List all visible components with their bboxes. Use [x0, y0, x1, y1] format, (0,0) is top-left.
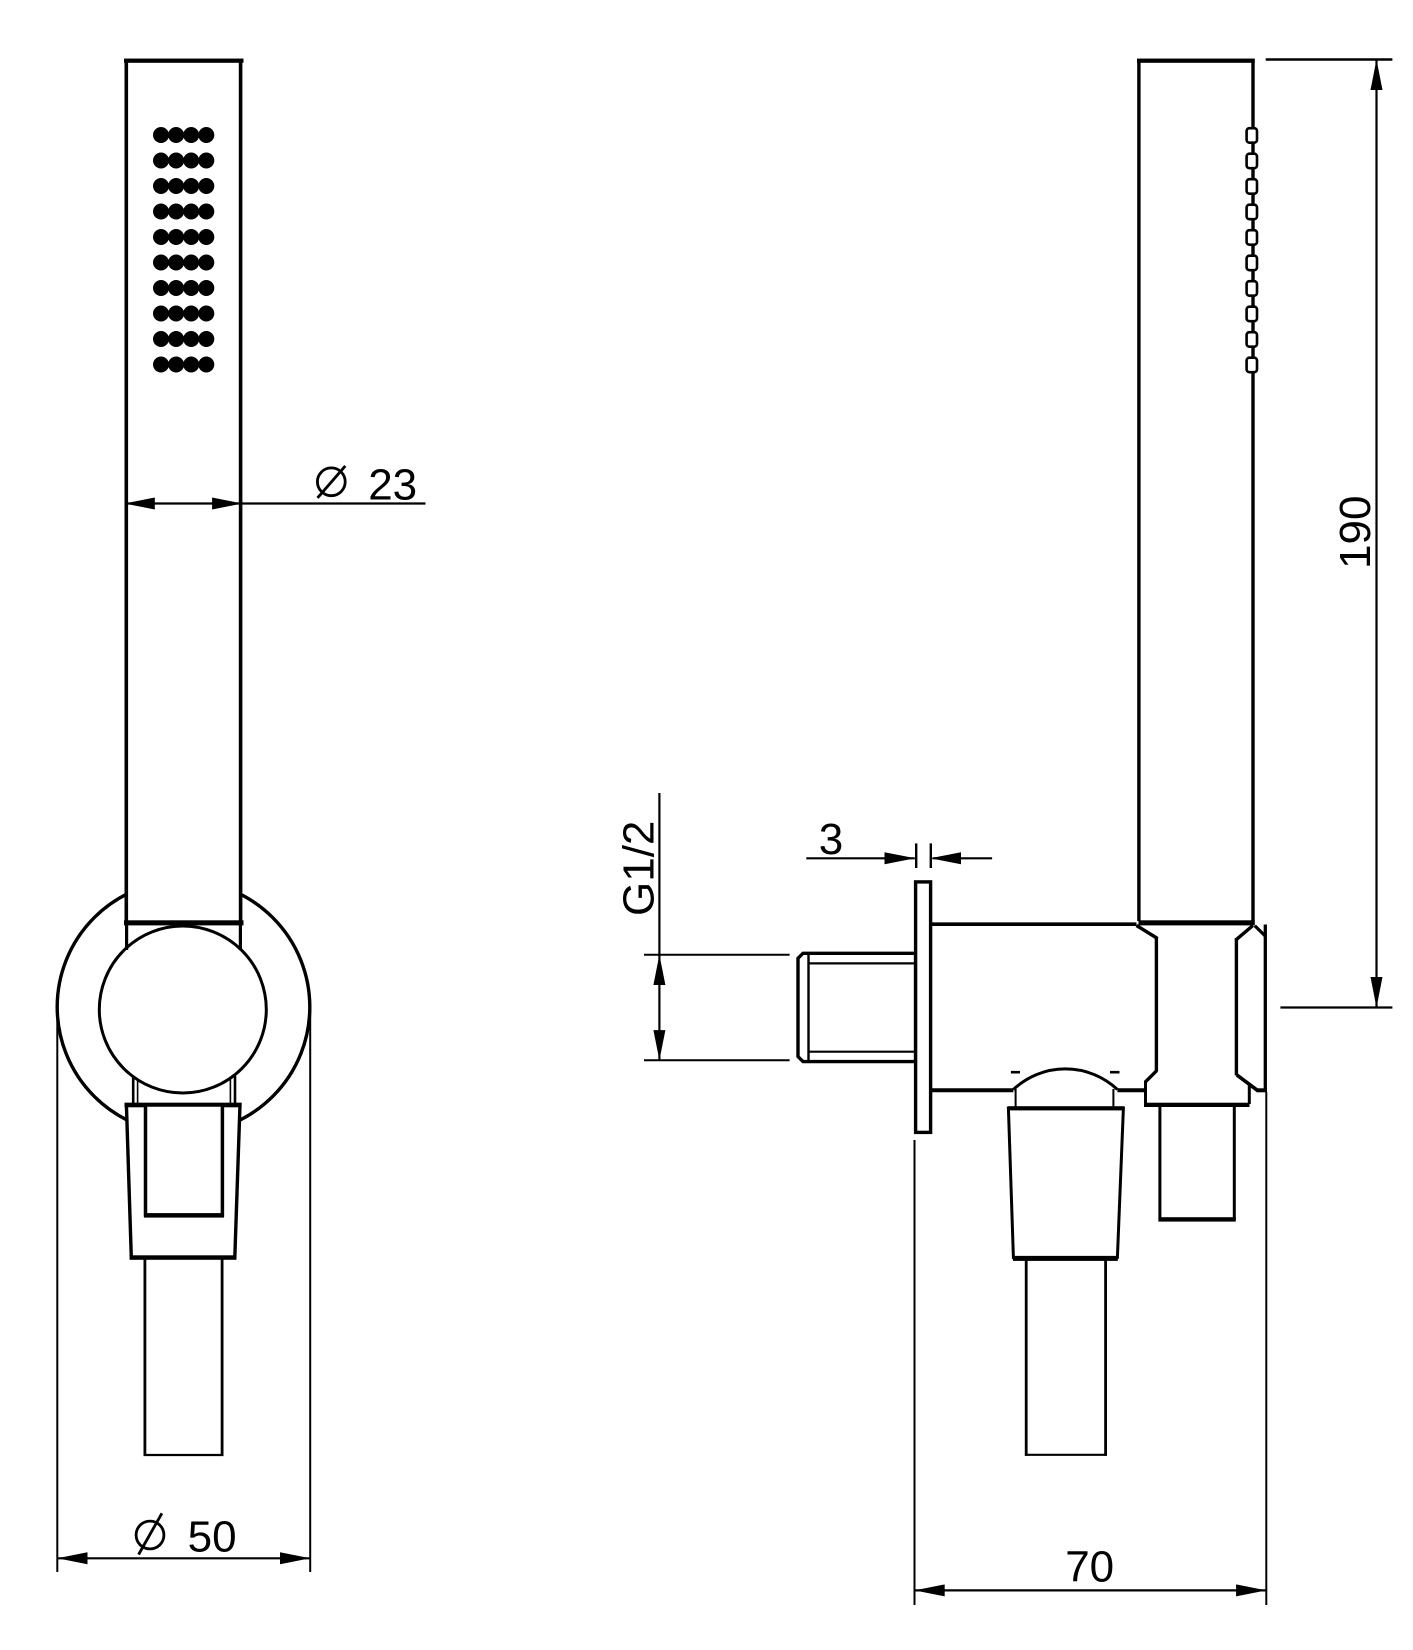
svg-text:3: 3 [819, 815, 843, 864]
svg-text:190: 190 [1331, 496, 1380, 569]
svg-text:23: 23 [368, 460, 417, 509]
svg-text:70: 70 [1065, 1542, 1114, 1591]
svg-text:50: 50 [188, 1513, 237, 1562]
svg-text:G1/2: G1/2 [615, 821, 664, 916]
